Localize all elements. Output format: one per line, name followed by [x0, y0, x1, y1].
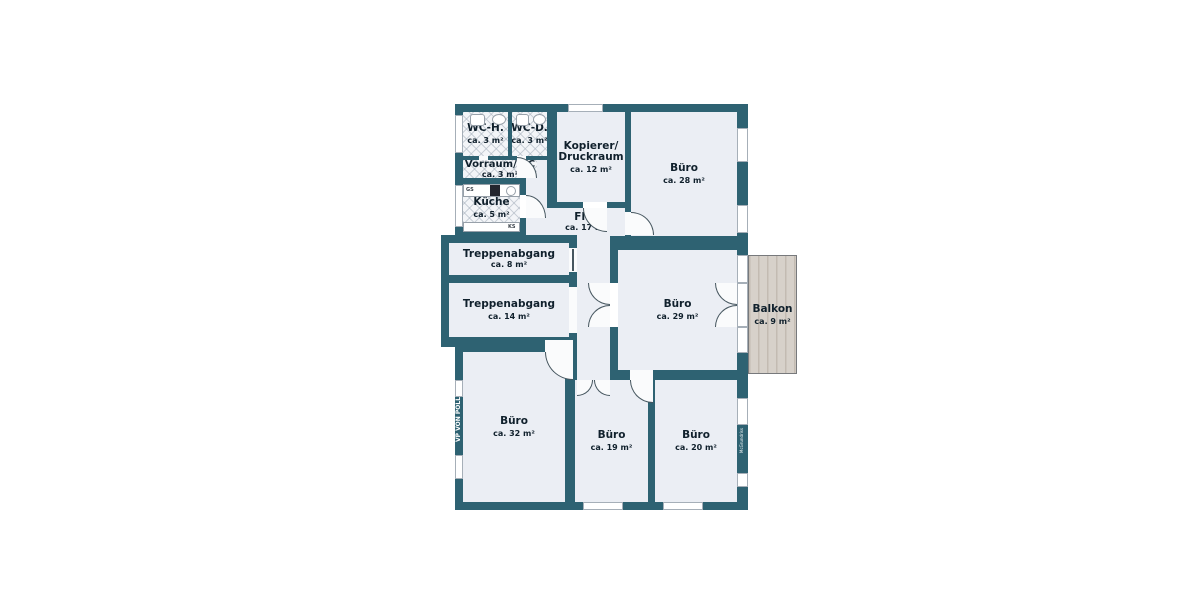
room-label: Büro — [598, 430, 626, 441]
kitchen-sink-icon — [506, 186, 516, 196]
room-label: Treppenabgang — [463, 249, 555, 260]
wall-segment — [610, 242, 748, 250]
wall-segment — [547, 202, 583, 208]
room-buero-19: Büro ca. 19 m² — [575, 380, 648, 502]
room-treppenabgang-14: Treppenabgang ca. 14 m² — [449, 283, 569, 337]
brand-watermark-right: McGrundriss — [739, 426, 747, 456]
door-opening — [545, 340, 573, 352]
room-label: Büro — [670, 163, 698, 174]
wall-segment — [520, 218, 526, 236]
window — [737, 398, 748, 425]
room-label: Treppenabgang — [463, 299, 555, 310]
wall-segment — [569, 272, 577, 287]
window — [568, 104, 603, 112]
wall-segment — [441, 235, 577, 243]
door-opening — [479, 156, 488, 160]
wall-segment — [569, 235, 577, 248]
room-area: ca. 28 m² — [663, 176, 705, 185]
door-opening — [630, 370, 653, 380]
wall-segment — [508, 112, 512, 156]
stove-icon — [490, 185, 500, 196]
fridge-label: KS — [508, 224, 515, 230]
room-area: ca. 8 m² — [491, 260, 527, 269]
window — [663, 502, 703, 510]
page: { "plan_type": "floor-plan", "colors": {… — [0, 0, 1200, 600]
balcony-door-opening — [737, 283, 748, 327]
room-label: Küche — [473, 197, 509, 208]
toilet-icon — [516, 114, 529, 126]
room-buero-29: Büro ca. 29 m² — [618, 250, 737, 370]
room-balkon: Balkon ca. 9 m² — [748, 255, 797, 374]
room-area: ca. 12 m² — [570, 165, 612, 174]
sink-icon — [492, 114, 506, 125]
wall-segment — [441, 235, 449, 347]
door-opening — [569, 287, 577, 333]
window — [737, 327, 748, 353]
room-treppenabgang-8: Treppenabgang ca. 8 m² — [449, 243, 569, 275]
room-label: Büro — [500, 416, 528, 427]
room-buero-32: Büro ca. 32 m² — [463, 352, 565, 502]
wall-segment — [610, 250, 618, 283]
room-area: ca. 3 m² — [467, 136, 503, 145]
window — [737, 205, 748, 233]
room-label-line2: Druckraum — [558, 152, 623, 163]
room-buero-20: Büro ca. 20 m² — [655, 380, 737, 502]
window — [737, 128, 748, 162]
brand-watermark-left: VP VON POLL — [455, 388, 463, 450]
wall-segment — [547, 104, 557, 208]
window — [737, 473, 748, 487]
room-area: ca. 9 m² — [754, 317, 790, 326]
room-area: ca. 29 m² — [657, 312, 699, 321]
room-area: ca. 3 m² — [511, 136, 547, 145]
wall-segment — [607, 202, 625, 208]
dishwasher-label: GS — [466, 187, 474, 193]
room-label: Büro — [682, 430, 710, 441]
sink-icon — [533, 114, 546, 125]
room-label: Balkon — [752, 304, 792, 315]
wall-segment — [463, 156, 547, 160]
floor-plan: WC-H. ca. 3 m² WC-D. ca. 3 m² Vorraum/WC… — [440, 90, 800, 515]
window — [583, 502, 623, 510]
room-area: ca. 19 m² — [591, 443, 633, 452]
wall-segment — [449, 275, 569, 283]
window — [455, 455, 463, 479]
room-label: Büro — [664, 299, 692, 310]
wall-segment — [520, 184, 526, 195]
room-label-line1: Kopierer/ — [564, 141, 619, 152]
room-area: ca. 14 m² — [488, 312, 530, 321]
window — [455, 115, 463, 153]
toilet-icon — [470, 114, 485, 126]
wall-segment — [610, 327, 618, 370]
room-area: ca. 20 m² — [675, 443, 717, 452]
room-area: ca. 5 m² — [473, 210, 509, 219]
window — [455, 185, 463, 227]
room-area: ca. 32 m² — [493, 429, 535, 438]
room-kopierer-druckraum: Kopierer/ Druckraum ca. 12 m² — [557, 112, 625, 202]
window — [737, 255, 748, 283]
door-leaf-line — [572, 249, 574, 271]
